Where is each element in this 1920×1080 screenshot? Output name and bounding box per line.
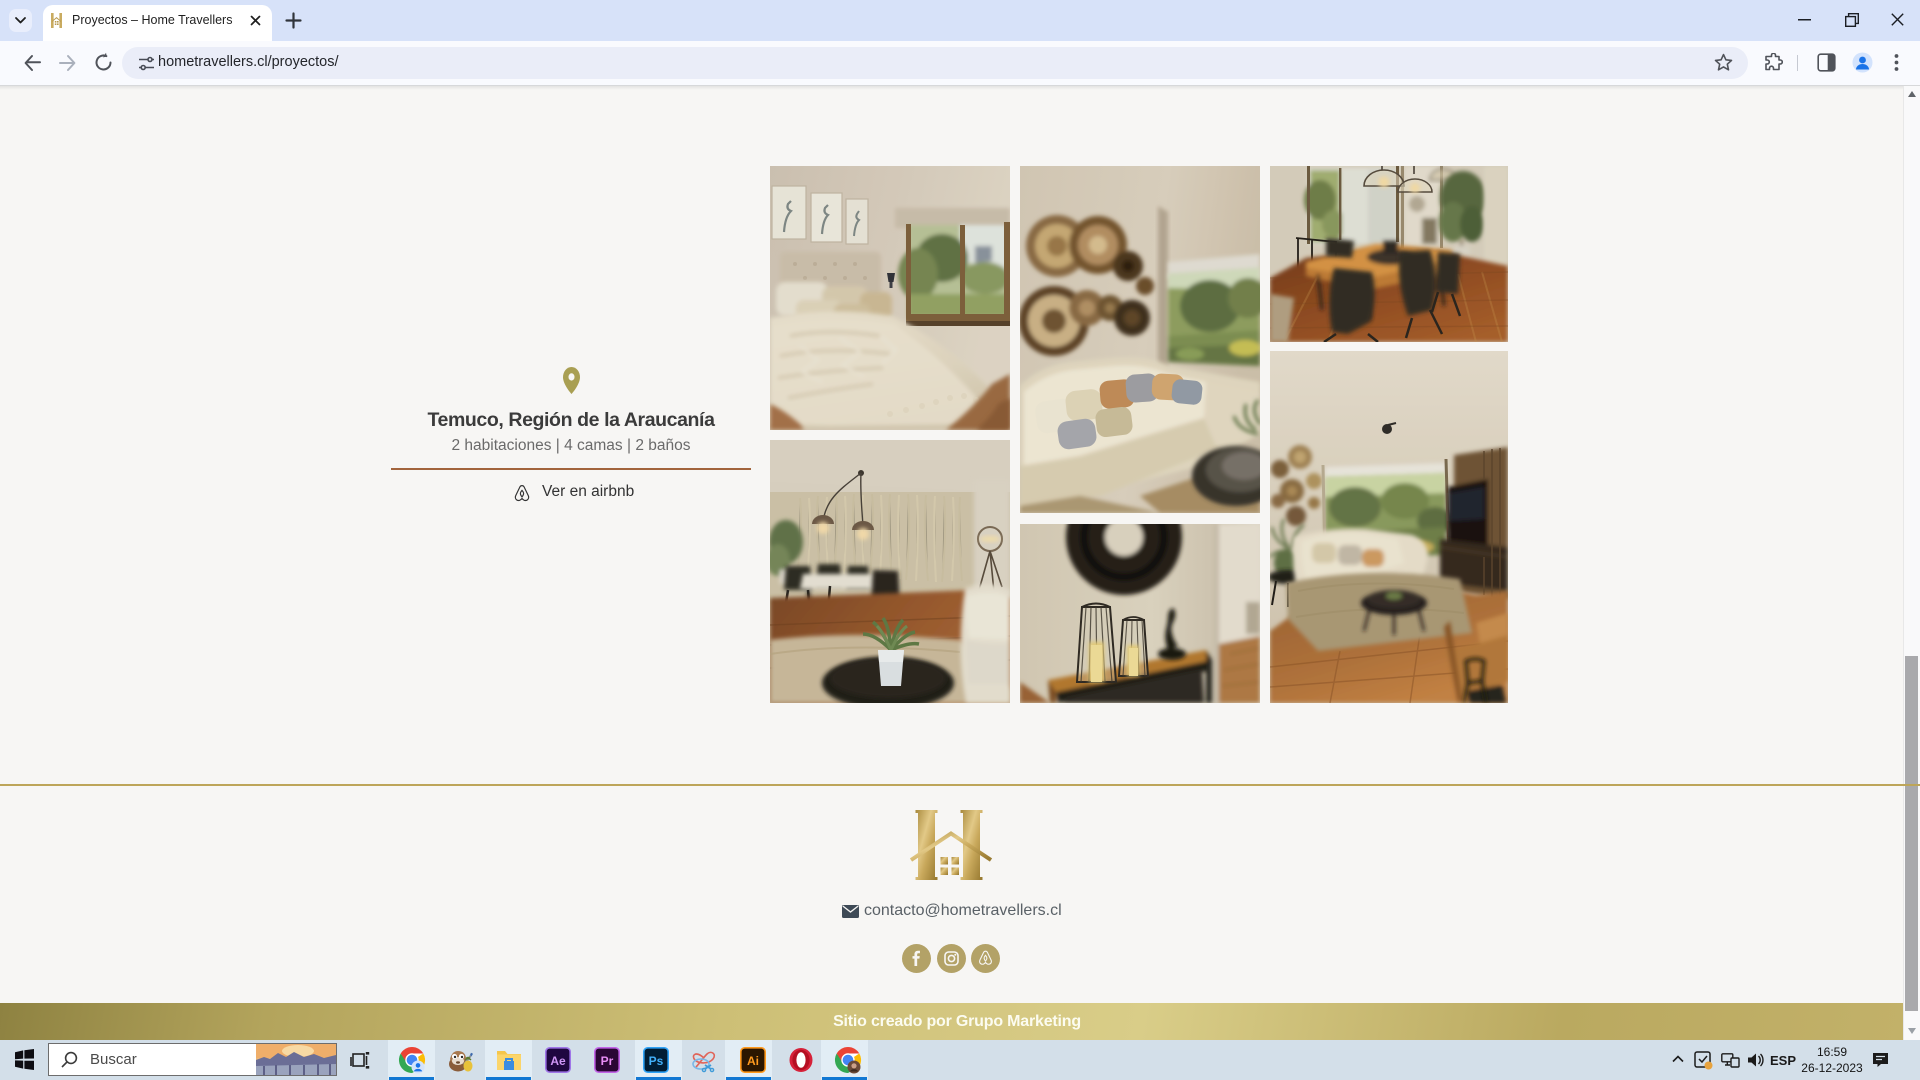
svg-text:Ps: Ps — [649, 1054, 664, 1068]
svg-text:Pr: Pr — [601, 1054, 614, 1068]
svg-text:Ai: Ai — [747, 1054, 759, 1068]
svg-text:Ae: Ae — [550, 1054, 566, 1068]
